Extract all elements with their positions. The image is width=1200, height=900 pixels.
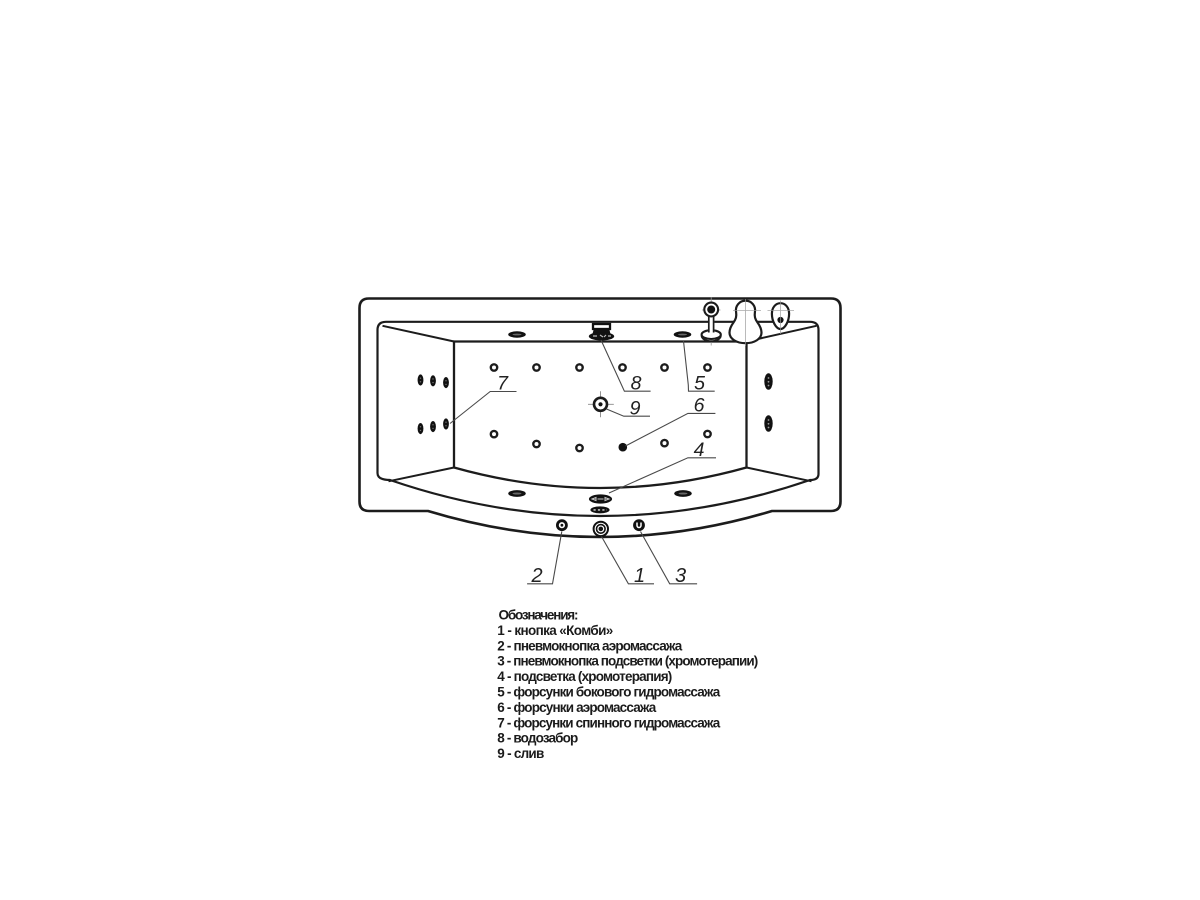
- svg-text:5: 5: [694, 372, 705, 394]
- svg-text:2: 2: [530, 565, 542, 587]
- svg-text:8: 8: [631, 372, 642, 394]
- svg-text:3 - пневмокнопка подсветки (хр: 3 - пневмокнопка подсветки (хромотерапии…: [497, 654, 758, 669]
- svg-text:6 - форсунки аэромассажа: 6 - форсунки аэромассажа: [497, 700, 656, 715]
- svg-text:6: 6: [694, 394, 705, 416]
- svg-text:9: 9: [630, 397, 641, 419]
- svg-text:5 - форсунки бокового гидромас: 5 - форсунки бокового гидромассажа: [497, 685, 720, 700]
- svg-text:9 - слив: 9 - слив: [497, 746, 544, 761]
- svg-text:1: 1: [634, 565, 645, 587]
- svg-text:3: 3: [675, 565, 686, 587]
- svg-text:7 - форсунки спинного гидромас: 7 - форсунки спинного гидромассажа: [497, 715, 720, 730]
- svg-text:4 - подсветка (хромотерапия): 4 - подсветка (хромотерапия): [497, 669, 672, 684]
- svg-text:8 - водозабор: 8 - водозабор: [497, 731, 578, 746]
- svg-text:Обозначения:: Обозначения:: [499, 608, 579, 623]
- svg-text:2 - пневмокнопка аэромассажа: 2 - пневмокнопка аэромассажа: [497, 638, 682, 653]
- svg-text:7: 7: [497, 373, 509, 395]
- svg-text:4: 4: [694, 439, 705, 461]
- svg-text:1 - кнопка «Комби»: 1 - кнопка «Комби»: [497, 623, 613, 638]
